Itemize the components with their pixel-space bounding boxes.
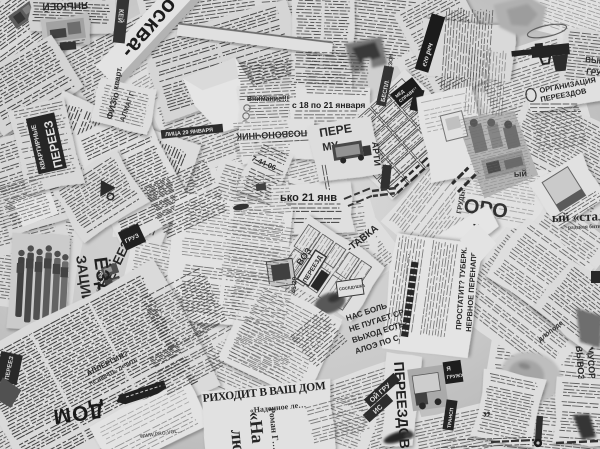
svg-text:ый «стал: ый «стал (552, 208, 600, 225)
svg-text:с 18 по 21 января: с 18 по 21 января (292, 100, 365, 110)
svg-text:радская битва: радская битва (568, 223, 600, 231)
svg-text:Я: Я (446, 366, 451, 373)
svg-text:лю: лю (227, 428, 249, 449)
